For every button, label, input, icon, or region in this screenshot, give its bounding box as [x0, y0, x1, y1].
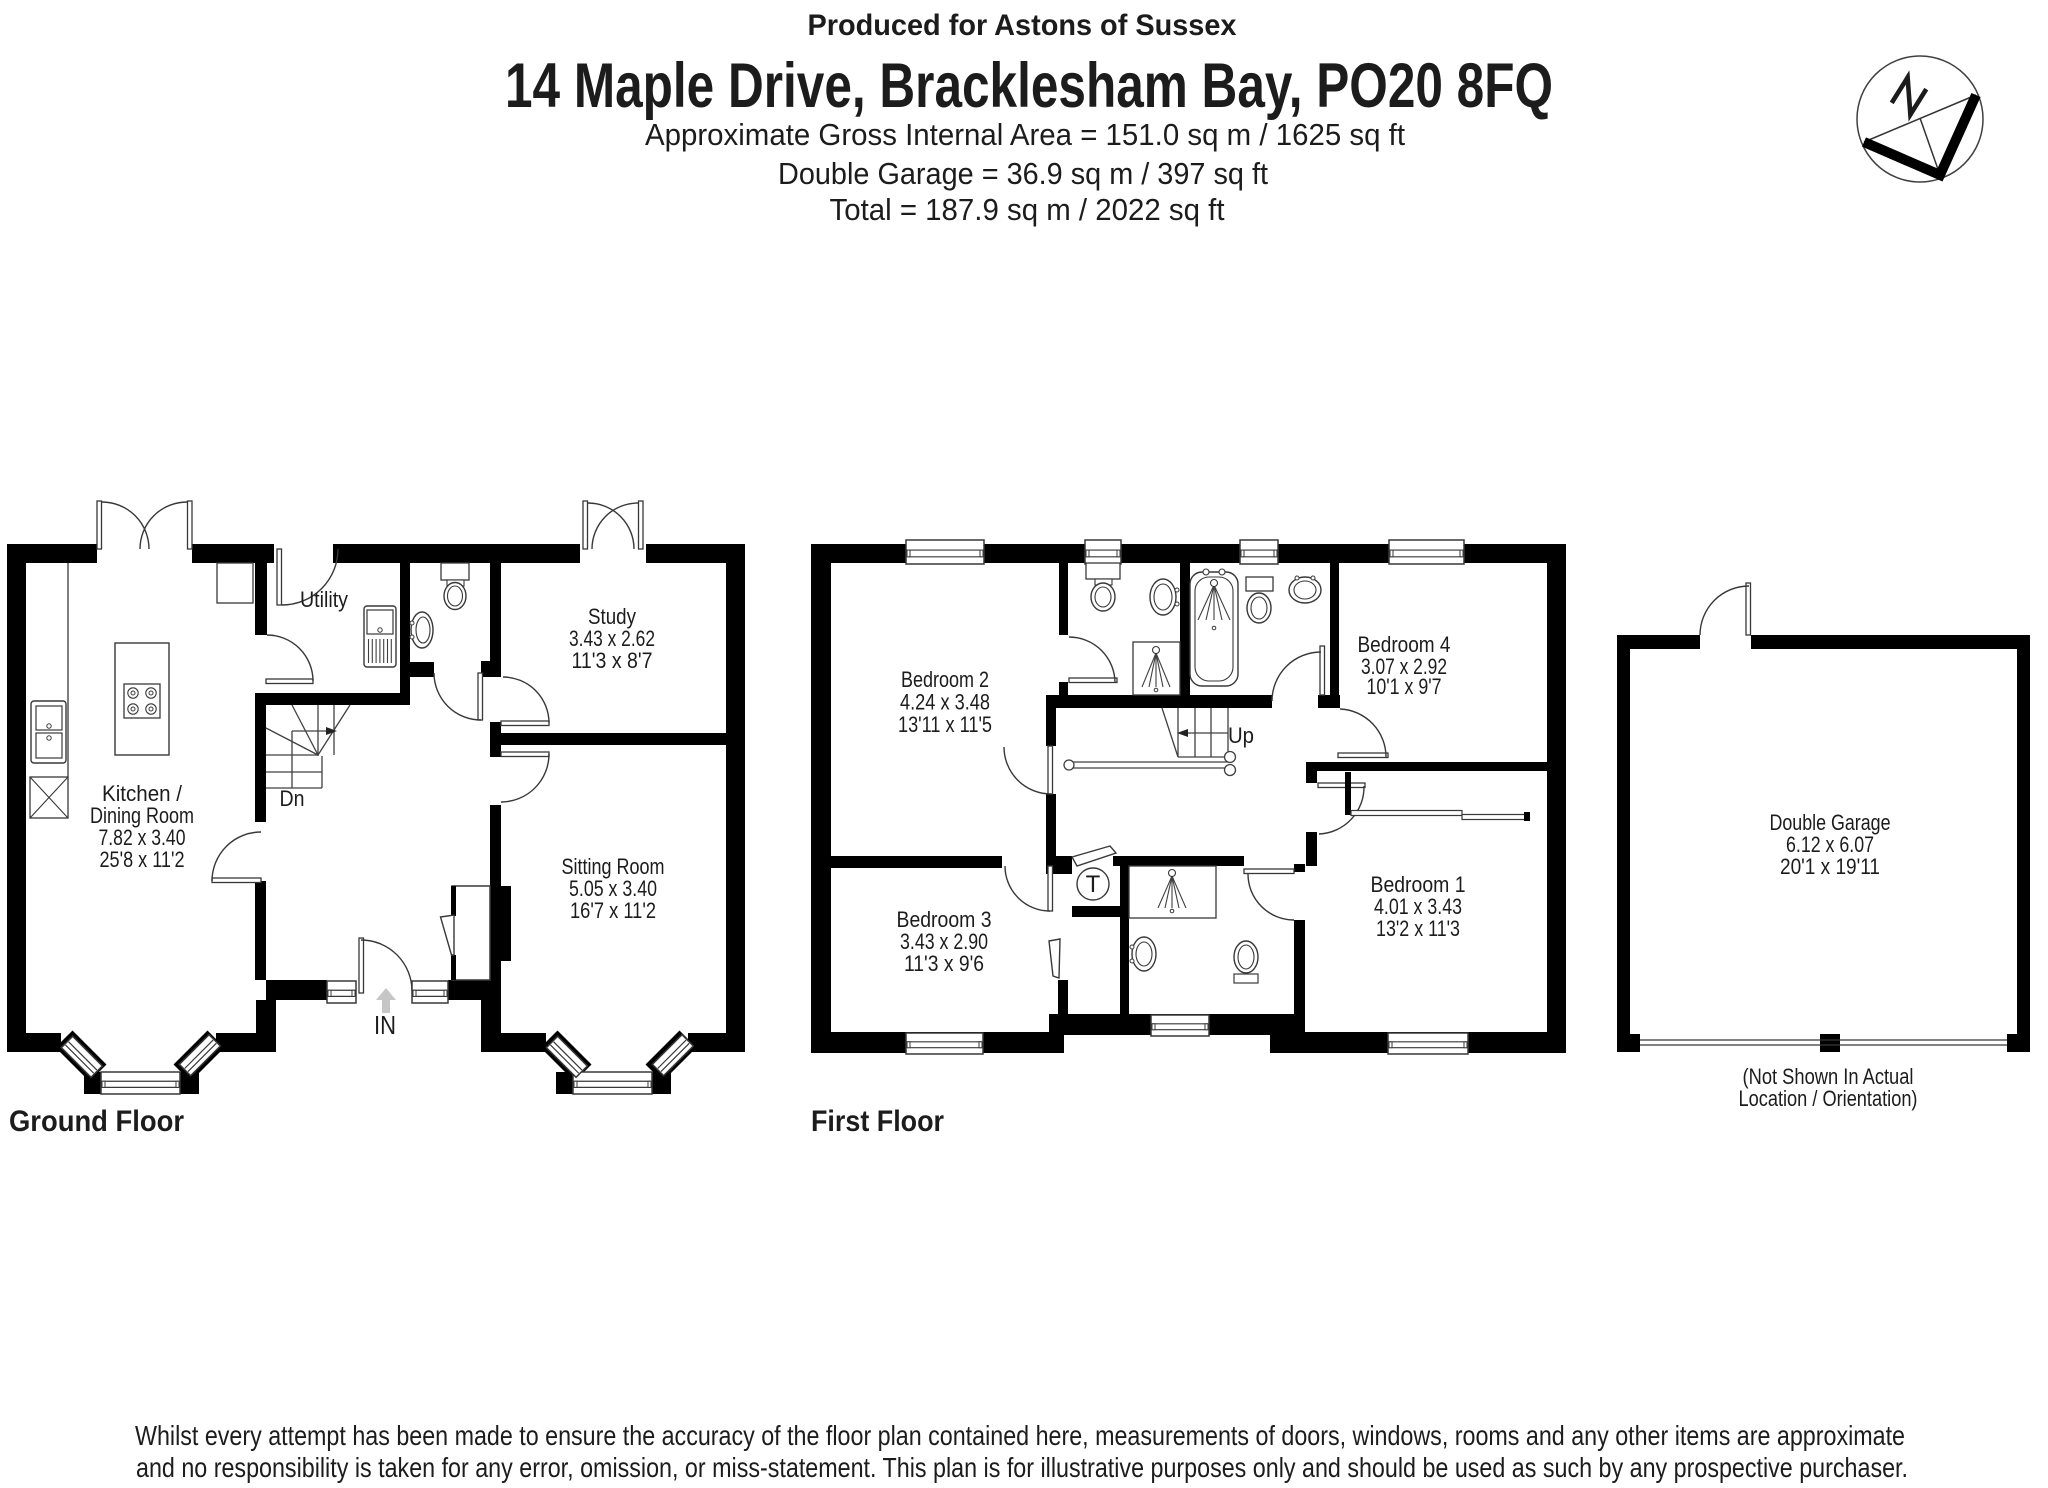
svg-text:and no responsibility is taken: and no responsibility is taken for any e… [136, 1452, 1908, 1483]
svg-text:Double Garage = 36.9 sq m / 39: Double Garage = 36.9 sq m / 397 sq ft [778, 156, 1268, 191]
svg-text:20'1 x 19'11: 20'1 x 19'11 [1780, 854, 1880, 879]
svg-text:Produced for Astons of Sussex: Produced for Astons of Sussex [808, 9, 1238, 42]
svg-text:Location / Orientation): Location / Orientation) [1739, 1086, 1918, 1111]
svg-text:11'3 x 9'6: 11'3 x 9'6 [904, 951, 984, 976]
svg-text:16'7 x 11'2: 16'7 x 11'2 [570, 898, 656, 923]
svg-text:Dn: Dn [280, 786, 305, 811]
svg-text:11'3 x 8'7: 11'3 x 8'7 [572, 648, 653, 673]
svg-text:Utility: Utility [300, 587, 348, 612]
svg-text:10'1 x 9'7: 10'1 x 9'7 [1367, 674, 1442, 699]
svg-text:Bedroom 2: Bedroom 2 [901, 667, 989, 692]
svg-text:Whilst every attempt has been: Whilst every attempt has been made to en… [135, 1420, 1905, 1451]
svg-text:Total = 187.9 sq m / 2022 sq f: Total = 187.9 sq m / 2022 sq ft [830, 192, 1225, 227]
svg-text:T: T [1086, 871, 1101, 898]
svg-text:13'2 x 11'3: 13'2 x 11'3 [1376, 916, 1460, 941]
svg-text:14 Maple Drive, Bracklesham Ba: 14 Maple Drive, Bracklesham Bay, PO20 8F… [505, 51, 1553, 121]
svg-text:First Floor: First Floor [811, 1105, 944, 1138]
svg-text:13'11 x 11'5: 13'11 x 11'5 [898, 712, 992, 737]
svg-text:4.24 x 3.48: 4.24 x 3.48 [900, 690, 990, 715]
svg-text:Up: Up [1228, 723, 1254, 748]
svg-text:IN: IN [374, 1010, 396, 1040]
svg-text:25'8 x 11'2: 25'8 x 11'2 [100, 847, 185, 872]
svg-text:Approximate Gross Internal Are: Approximate Gross Internal Area = 151.0 … [645, 117, 1405, 152]
svg-text:Ground Floor: Ground Floor [9, 1105, 184, 1138]
